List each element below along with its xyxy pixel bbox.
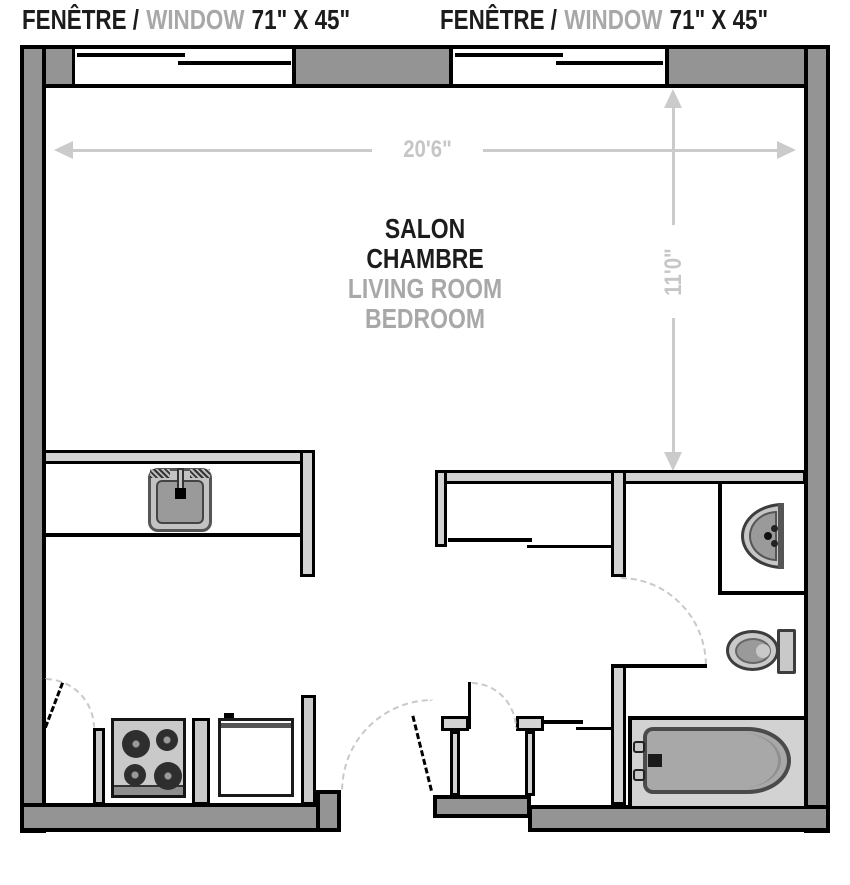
bathroom-wall-upper [611, 470, 626, 577]
window-label-size: 71" X 45" [252, 4, 350, 36]
sink-tap-icon [771, 540, 778, 547]
floor-plan: FENÊTRE / WINDOW 71" X 45" FENÊTRE / WIN… [0, 0, 850, 885]
hall-closet-stub-cap [516, 716, 544, 731]
sink-drain-icon [175, 488, 186, 499]
window-label-right: FENÊTRE / WINDOW 71" X 45" [440, 4, 768, 36]
stove-burner-icon [154, 762, 182, 790]
dim-height-label: 11'0" [660, 225, 688, 319]
closet-sliding-door [448, 538, 532, 542]
refrigerator-top-band [221, 723, 291, 728]
bathroom-wall-lower [611, 664, 626, 805]
closet-sliding-door [544, 720, 583, 724]
sink-faucet-icon [764, 532, 772, 540]
hall-closet-stub-leg [525, 731, 535, 796]
wall-bottom-right [528, 805, 830, 832]
window-pane-line [556, 61, 663, 65]
dim-width-line [483, 149, 777, 152]
closet-sliding-door [576, 727, 614, 730]
arrow-down-icon [664, 452, 682, 471]
bathroom-door-arc [620, 577, 707, 666]
room-name-fr: SALON [318, 214, 531, 244]
window-right [453, 49, 665, 84]
window-label-en: WINDOW [146, 4, 244, 36]
dim-width-line [70, 149, 372, 152]
sink-tap-icon [150, 469, 170, 478]
bathtub-knob-icon [633, 769, 645, 781]
toilet-bowl-highlight [756, 644, 770, 658]
arrow-up-icon [664, 89, 682, 108]
window-pane-line [455, 53, 563, 57]
room-name-en: BEDROOM [318, 304, 531, 334]
closet-wall-leg [435, 470, 447, 547]
bathroom-door-leaf [614, 664, 707, 668]
window-pane-line [77, 53, 185, 57]
sink-tap-icon [771, 525, 778, 532]
bathtub [643, 727, 791, 794]
wall-left [20, 45, 46, 833]
dim-width-label: 20'6" [380, 136, 474, 164]
window-left [75, 49, 292, 84]
window-label-size: 71" X 45" [670, 4, 768, 36]
cabinet-stub [93, 728, 105, 805]
wall-top-pier-middle [296, 49, 449, 84]
cabinet-stub [192, 718, 210, 805]
arrow-left-icon [54, 141, 73, 159]
wall-bottom-middle [433, 795, 531, 818]
window-label-fr: FENÊTRE / [440, 4, 557, 36]
kitchen-partition-leg [300, 450, 315, 577]
bathtub-spout-icon [648, 754, 662, 767]
stove [111, 718, 186, 798]
window-label-fr: FENÊTRE / [22, 4, 139, 36]
kitchen-partition-wall [43, 450, 315, 464]
wall-bottom-left [20, 803, 341, 832]
stove-burner-icon [156, 729, 178, 751]
bathtub-inner-rim [726, 733, 781, 788]
arrow-right-icon [777, 141, 796, 159]
hall-closet-stub-cap [441, 716, 469, 731]
entry-door-jamb [316, 790, 341, 832]
hall-closet-door-arc [471, 682, 517, 729]
room-label: SALON CHAMBRE LIVING ROOM BEDROOM [318, 214, 531, 334]
dim-height-line [672, 318, 675, 454]
kitchen-counter-edge [43, 533, 302, 537]
room-name-fr: CHAMBRE [318, 244, 531, 274]
toilet-tank [777, 629, 796, 674]
cabinet-stub [301, 695, 316, 805]
bathroom-sink-bracket [778, 503, 784, 569]
window-pane-line [178, 61, 291, 65]
hall-closet-stub-leg [450, 731, 460, 796]
sink-tap-icon [190, 469, 210, 478]
stove-burner-icon [124, 764, 146, 786]
vanity-edge [718, 591, 806, 595]
wall-top-pier-right [669, 49, 826, 84]
closet-sliding-door [527, 545, 612, 548]
stove-burner-icon [122, 730, 150, 758]
window-label-en: WINDOW [564, 4, 662, 36]
wall-right [804, 45, 830, 833]
window-label-left: FENÊTRE / WINDOW 71" X 45" [22, 4, 350, 36]
dim-height-line [672, 106, 675, 225]
bathtub-knob-icon [633, 741, 645, 753]
vanity-edge [718, 484, 722, 594]
refrigerator [218, 718, 294, 797]
room-name-en: LIVING ROOM [318, 274, 531, 304]
